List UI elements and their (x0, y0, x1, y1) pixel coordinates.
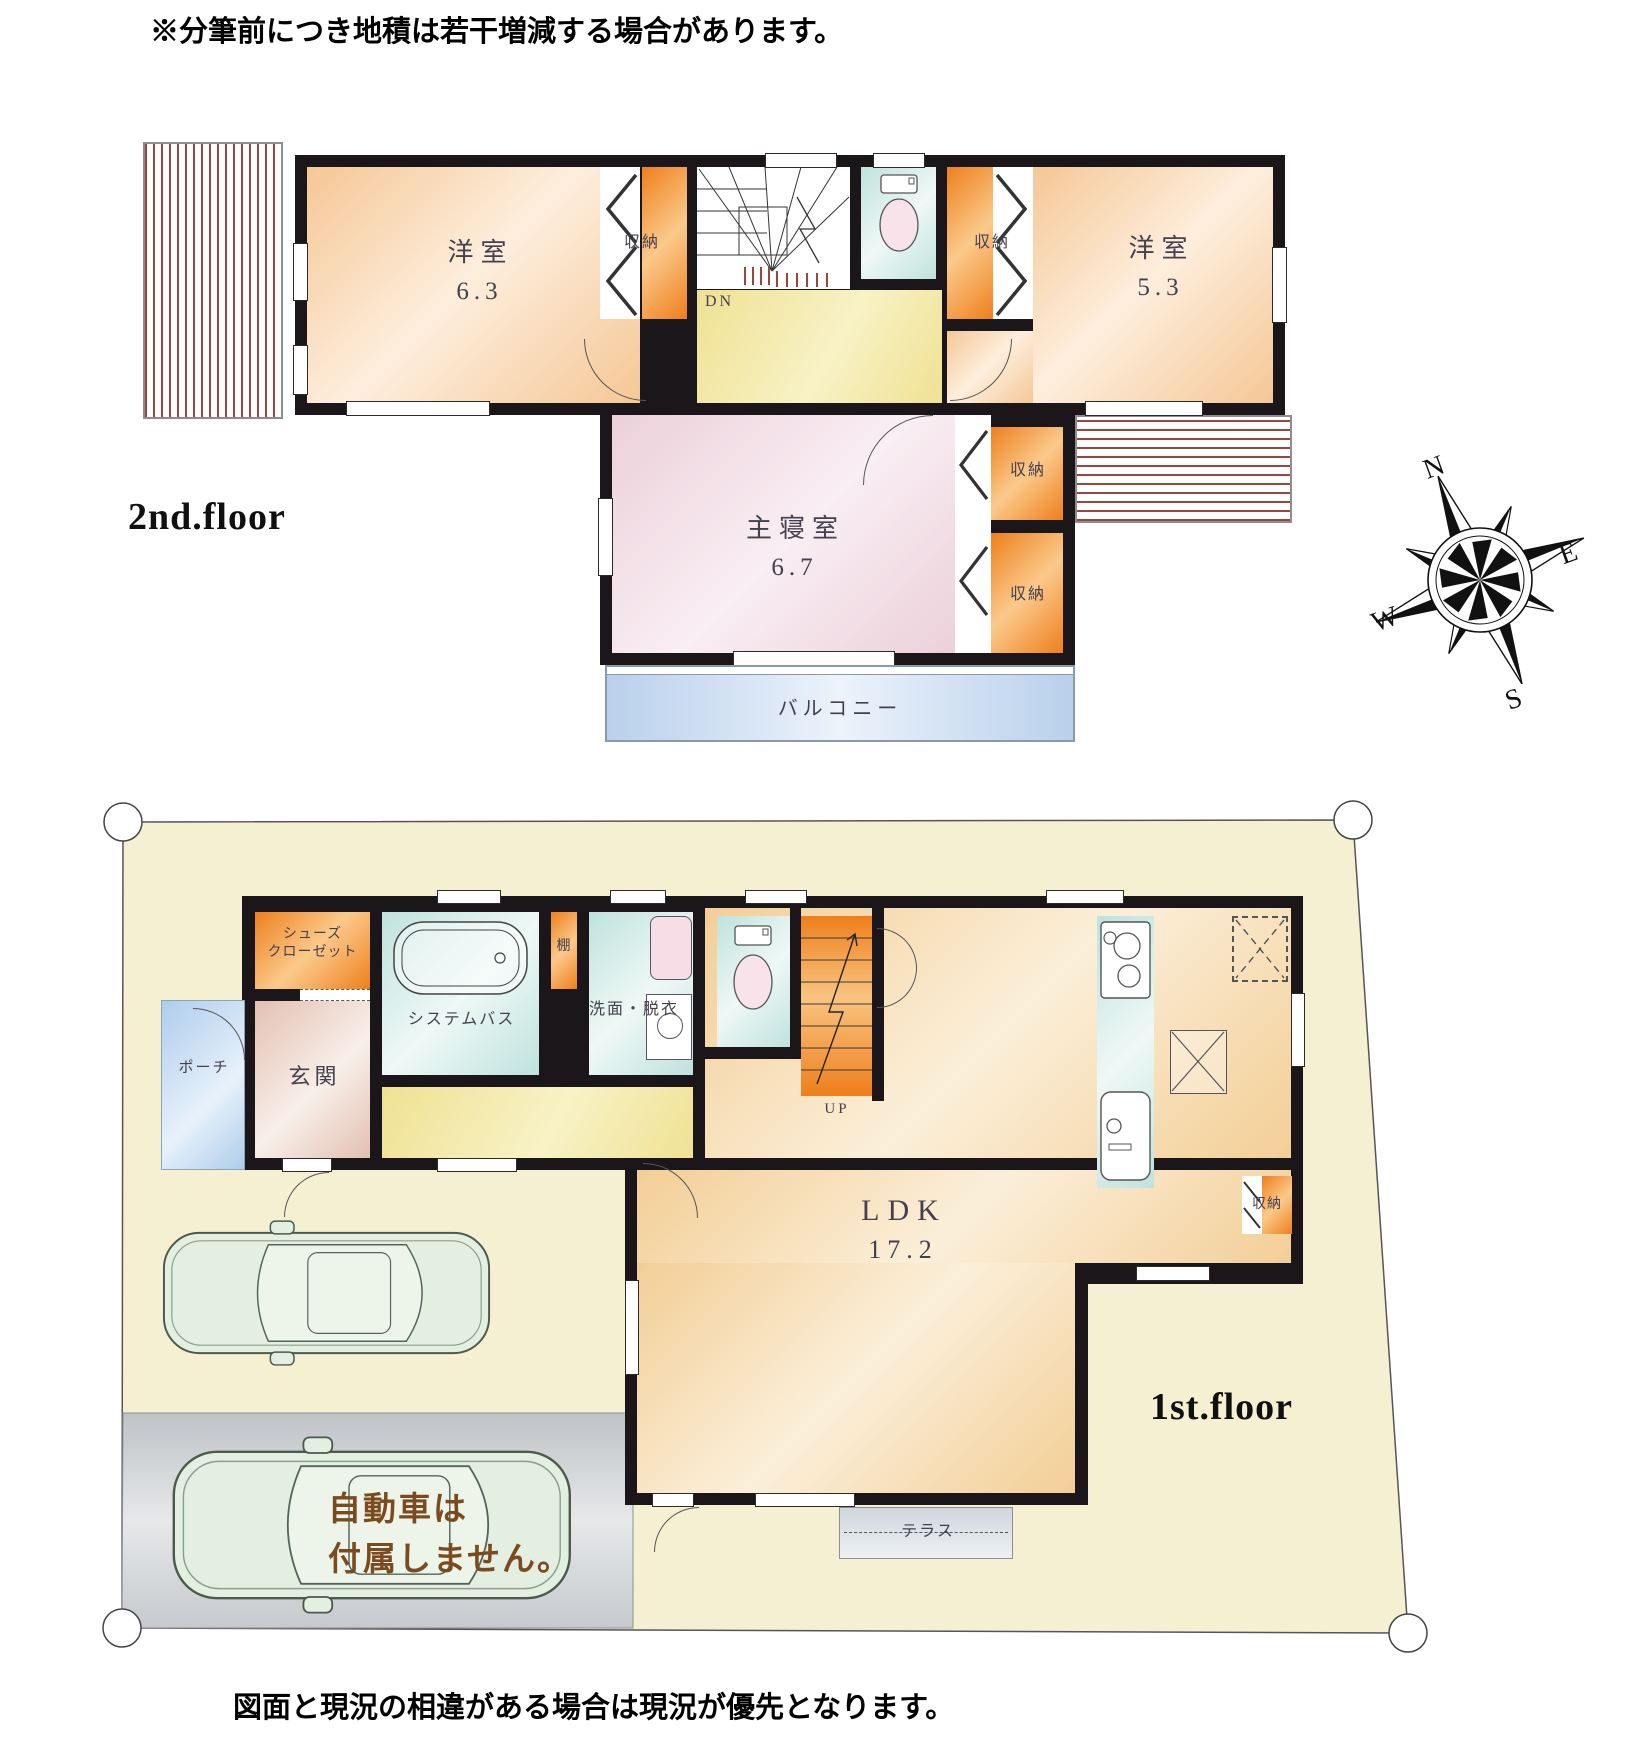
window (1085, 401, 1203, 416)
room-name: 洋室 (402, 237, 552, 270)
window (282, 1158, 332, 1172)
stairs-down (697, 167, 850, 289)
window (598, 498, 613, 576)
ldk-name: LDK (810, 1192, 990, 1230)
shoes-closet-line2: クローゼット (257, 944, 368, 962)
shoes-closet-label: シューズ クローゼット (257, 926, 368, 961)
room-area: 6.7 (697, 552, 887, 583)
window (346, 401, 490, 416)
floor2-master-block: 主寝室 6.7 収納 収納 (600, 403, 1075, 665)
room-label-master: 主寝室 6.7 (697, 513, 887, 583)
stairs-icon (697, 167, 850, 289)
closet-63-label: 収納 (595, 233, 687, 253)
room-label-yoshitsu-53: 洋室 5.3 (1083, 233, 1233, 303)
closet-1f-label: 収納 (1238, 1196, 1296, 1214)
stairs-up-label: UP (808, 1100, 866, 1119)
toilet-icon (717, 916, 790, 1047)
terrace-label: テラス (840, 1522, 1014, 1542)
washroom-label: 洗面・脱衣 (548, 1000, 718, 1020)
window (755, 1493, 855, 1507)
window (437, 1158, 517, 1172)
balcony-label: バルコニー (607, 697, 1073, 722)
window (610, 890, 666, 904)
window (765, 153, 837, 168)
window (1046, 890, 1124, 904)
room-label-yoshitsu-63: 洋室 6.3 (402, 237, 552, 307)
entrance-label: 玄関 (255, 1063, 370, 1091)
room-area: 6.3 (402, 276, 552, 307)
master-closet-doors (955, 415, 991, 653)
floor1-label: 1st.floor (1150, 1385, 1293, 1429)
compass-rose-icon (1355, 425, 1605, 725)
roof-right (1075, 415, 1292, 523)
vanity-icon (650, 916, 692, 980)
wall (705, 1047, 801, 1059)
floorplan-page: ※分筆前につき地積は若干増減する場合があります。 洋室 6.3 収納 (0, 0, 1635, 1744)
refrigerator-space (1232, 916, 1288, 982)
car-note-line1: 自動車は (328, 1482, 468, 1530)
porch-label: ポーチ (162, 1059, 246, 1078)
master-closet-lower-label: 収納 (989, 585, 1065, 605)
folding-door-icon (955, 415, 991, 653)
shoes-closet-line1: シューズ (257, 926, 368, 944)
toilet-2f (861, 167, 936, 279)
window (1291, 993, 1305, 1067)
dashed-x-icon (1234, 918, 1286, 980)
top-note: ※分筆前につき地積は若干増減する場合があります。 (150, 8, 843, 50)
room-area: 5.3 (1083, 272, 1233, 303)
terrace: テラス (839, 1507, 1013, 1559)
ldk-area: 17.2 (810, 1234, 990, 1267)
hall-2f: DN (697, 290, 942, 403)
floor2-band: 洋室 6.3 収納 (295, 155, 1285, 415)
window (1272, 247, 1287, 323)
window (437, 890, 501, 904)
stairs-up (801, 916, 872, 1096)
kitchen-counter (1097, 916, 1154, 1188)
master-closet-upper-label: 収納 (989, 461, 1065, 481)
closet-53-label: 収納 (945, 233, 1037, 253)
shoes-closet: シューズ クローゼット (255, 912, 370, 989)
window (1136, 1266, 1210, 1281)
entrance: 玄関 (255, 1001, 370, 1158)
toilet-1f (717, 916, 790, 1047)
roof-left (143, 142, 283, 419)
bottom-note: 図面と現況の相違がある場合は現況が優先となります。 (233, 1684, 954, 1726)
floor2-label: 2nd.floor (128, 495, 286, 539)
toilet-icon (861, 167, 936, 279)
car-note-line2: 付属しません。 (328, 1532, 572, 1580)
ldk-label: LDK 17.2 (810, 1192, 990, 1266)
window (625, 1280, 639, 1375)
open-passage (300, 989, 370, 1001)
ldk-floor (637, 1263, 1075, 1493)
room-name: 主寝室 (697, 513, 887, 546)
wall (790, 896, 801, 1059)
balcony: バルコニー (605, 665, 1075, 742)
window (733, 651, 895, 666)
stairs-icon (801, 916, 872, 1096)
bath-label: システムバス (382, 1010, 539, 1030)
bathtub-icon (382, 912, 539, 1007)
hall-1f (382, 1087, 693, 1158)
stairs-dn-label: DN (705, 292, 734, 312)
car-top-icon (160, 1218, 495, 1368)
shelf-label: 棚 (543, 938, 585, 956)
window (293, 243, 308, 301)
kitchen-fixtures-icon (1097, 916, 1154, 1188)
bath: システムバス (382, 912, 539, 1075)
balcony-rail (607, 667, 1073, 675)
cupboard (1170, 1030, 1227, 1094)
room-yoshitsu-53: 洋室 5.3 (1033, 167, 1273, 403)
window (652, 1493, 694, 1507)
window (873, 153, 925, 168)
x-icon (1171, 1031, 1225, 1092)
room-name: 洋室 (1083, 233, 1233, 266)
window (293, 345, 308, 395)
window (745, 890, 807, 904)
